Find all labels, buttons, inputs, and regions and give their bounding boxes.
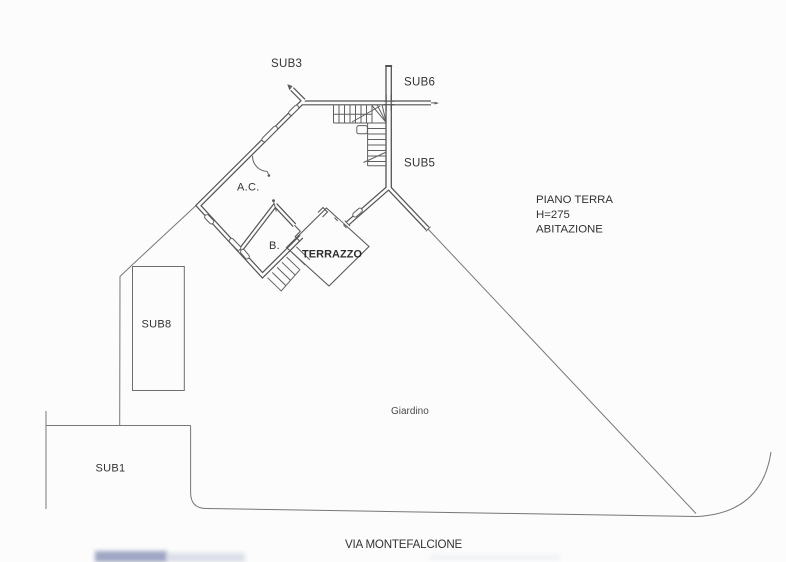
svg-text:Giardino: Giardino — [391, 406, 429, 417]
svg-text:H=275: H=275 — [536, 209, 570, 221]
svg-text:TERRAZZO: TERRAZZO — [302, 249, 363, 261]
svg-text:A.C.: A.C. — [237, 182, 260, 194]
svg-text:SUB6: SUB6 — [404, 77, 435, 89]
svg-text:PIANO TERRA: PIANO TERRA — [536, 194, 613, 206]
svg-text:VIA MONTEFALCIONE: VIA MONTEFALCIONE — [345, 538, 463, 551]
svg-text:B.: B. — [269, 240, 280, 252]
svg-text:SUB5: SUB5 — [404, 158, 435, 170]
svg-text:ABITAZIONE: ABITAZIONE — [536, 224, 603, 236]
svg-text:SUB3: SUB3 — [271, 58, 302, 70]
svg-text:SUB1: SUB1 — [96, 463, 126, 475]
svg-text:SUB8: SUB8 — [142, 319, 172, 331]
